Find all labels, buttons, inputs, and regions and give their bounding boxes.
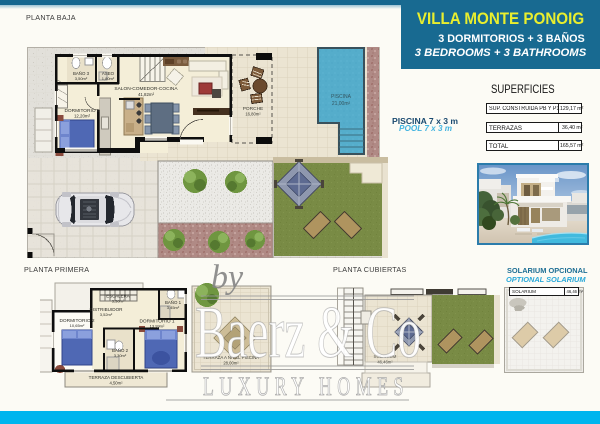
svg-text:3,52m²: 3,52m² [100,312,113,317]
svg-text:13,99m²: 13,99m² [150,324,165,329]
svg-text:16,80m²: 16,80m² [245,112,261,117]
svg-text:3,30m²: 3,30m² [112,299,125,304]
svg-text:SOLARIUM: SOLARIUM [374,354,397,359]
svg-text:28,00m²: 28,00m² [223,361,239,366]
svg-text:1,80m²: 1,80m² [102,76,115,81]
svg-text:10,65m²: 10,65m² [70,323,85,328]
svg-text:21,00m²: 21,00m² [332,101,351,107]
svg-text:4,50m²: 4,50m² [109,381,123,386]
svg-text:3,50m²: 3,50m² [75,76,88,81]
svg-text:TERRAZA A NIVEL PISCINA: TERRAZA A NIVEL PISCINA [203,355,260,360]
svg-text:41,82m²: 41,82m² [138,92,155,97]
svg-text:TERRAZA DESCUBIERTA: TERRAZA DESCUBIERTA [89,375,145,380]
svg-text:46,46m²: 46,46m² [377,360,393,365]
svg-text:PISCINA: PISCINA [331,94,352,100]
svg-text:12,20m²: 12,20m² [74,114,91,119]
svg-text:3,45m²: 3,45m² [167,305,180,310]
svg-text:3,30m²: 3,30m² [114,353,127,358]
